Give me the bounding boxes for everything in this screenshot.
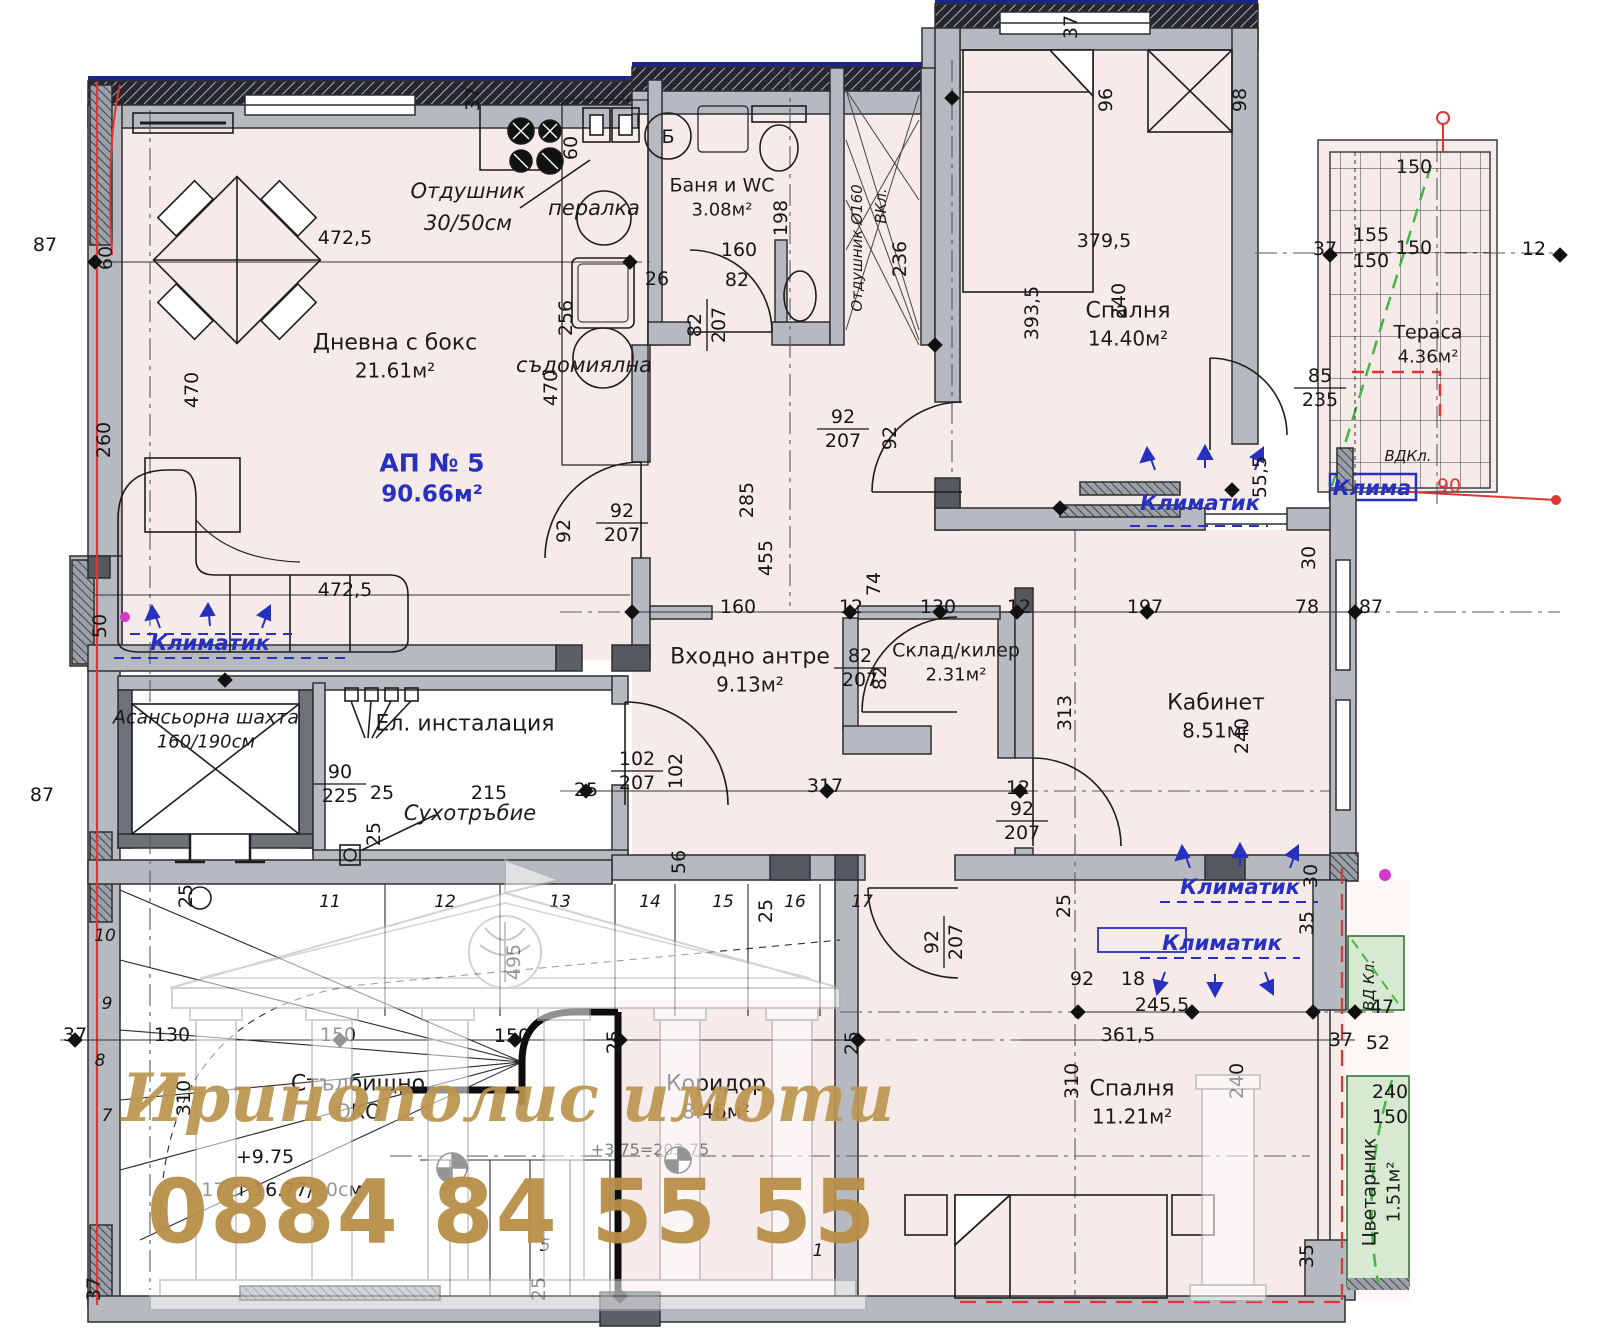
annotation-label: +3.75=203.75 [591, 1140, 709, 1159]
dimension-label: 74 [863, 572, 885, 596]
dimension-label: 150 [1396, 156, 1432, 178]
dimension-label: 150 [1372, 1106, 1408, 1128]
dimension-label: 87 [30, 784, 54, 806]
dimension-label: 92 [879, 426, 901, 450]
dimension-label: 15 [712, 892, 734, 912]
dimension-label: 313 [1054, 695, 1076, 731]
dimension-label: 9 [102, 994, 113, 1014]
annotation-label: пералка [548, 196, 640, 220]
annotation-label: съдомиялна [516, 353, 652, 377]
dimension-label: 256 [555, 300, 577, 336]
dimension-label: 7 [102, 1106, 113, 1126]
dimension-label: 393,5 [1021, 286, 1043, 340]
floor-plan-page: 8760472,53760470260256470472,55092285455… [0, 0, 1600, 1337]
room-label-living: Дневна с бокс21.61м² [313, 328, 477, 383]
dimension-label: 13 [549, 892, 571, 912]
svg-text:82: 82 [848, 645, 872, 667]
dimension-label: 52 [1366, 1032, 1390, 1054]
room-label-terrace: Тераса4.36м² [1393, 321, 1462, 370]
axis-marker [1552, 247, 1568, 263]
svg-text:225: 225 [322, 785, 358, 807]
annotation-label: Климатик [1140, 491, 1260, 515]
annotation-label: Отдушник [411, 179, 526, 203]
dimension-label: 455 [755, 540, 777, 576]
dimension-label: 56 [668, 850, 690, 874]
svg-text:207: 207 [945, 924, 967, 960]
dimension-label: 150 [1396, 237, 1432, 259]
dimension-label: 472,5 [318, 579, 372, 601]
dimension-label: 96 [1095, 88, 1117, 112]
dimension-label: 150 [1353, 250, 1389, 272]
dimension-label: 361,5 [1101, 1024, 1155, 1046]
dimension-label: 130 [154, 1024, 190, 1046]
dimension-label: 92 [1070, 968, 1094, 990]
annotation-label: Б [661, 126, 674, 148]
dimension-label: 37 [83, 1277, 105, 1301]
dimension-label: 37 [1060, 15, 1082, 39]
dimension-label: 155 [1353, 224, 1389, 246]
dimension-label: 240 [1372, 1081, 1408, 1103]
svg-text:102: 102 [619, 748, 655, 770]
annotation-label: Климатик [150, 631, 270, 655]
dimension-label: 25 [1053, 894, 1075, 918]
dimension-label: 60 [560, 136, 582, 160]
room-label-storage: Склад/килер2.31м² [892, 639, 1020, 688]
dimension-label: 87 [1359, 596, 1383, 618]
dimension-label: 160 [720, 596, 756, 618]
dimension-label: 5 [540, 1236, 551, 1256]
dimension-label: 35 [1296, 1244, 1318, 1268]
dimension-label: 17 [851, 892, 873, 912]
annotation-label: Отдушник Ø160 [848, 184, 866, 311]
terrace [1318, 112, 1561, 505]
dimension-label: 35 [1296, 911, 1318, 935]
room-label-bedroom1: Спалня14.40м² [1086, 296, 1171, 351]
dimension-label: 470 [181, 372, 203, 408]
room-label-el-installation: Ел. инсталация [375, 709, 554, 738]
dimension-label: 25 [528, 1277, 550, 1301]
dimension-label: 92 [553, 519, 575, 543]
dimension-label: 10 [94, 926, 116, 946]
dimension-label: 310 [1061, 1063, 1083, 1099]
dimension-label: 25 [363, 822, 385, 846]
annotation-label: 30/50см [424, 211, 512, 235]
dimension-label: 37 [462, 87, 484, 111]
room-label-bedroom2: Спалня11.21м² [1090, 1074, 1175, 1129]
dimension-label: 495 [503, 944, 525, 980]
dimension-label: 87 [33, 234, 57, 256]
dimension-label: 12 [1522, 238, 1546, 260]
svg-text:92: 92 [831, 406, 855, 428]
annotation-label: ВКл. [872, 188, 890, 223]
room-label-office: Кабинет8.51м² [1167, 688, 1265, 743]
dimension-label: 379,5 [1077, 230, 1131, 252]
dimension-label: 30 [1300, 864, 1322, 888]
room-label-planter: Цветарник1.51м² [1358, 1138, 1407, 1247]
dimension-label: 18 [1121, 968, 1145, 990]
svg-text:235: 235 [1302, 389, 1338, 411]
dimension-label: 25 [175, 884, 197, 908]
dimension-label: 240 [1226, 1063, 1248, 1099]
annotation-label: Климатик [1180, 875, 1300, 899]
svg-text:207: 207 [1004, 822, 1040, 844]
dimension-label: 26 [645, 268, 669, 290]
room-label-stairwell: СтълбищноОКО [291, 1069, 425, 1124]
annotation-label: 90 [1437, 475, 1461, 497]
dimension-label: 285 [736, 482, 758, 518]
svg-text:207: 207 [604, 524, 640, 546]
annotation-label: Климатик [1162, 931, 1282, 955]
dimension-label: 11 [319, 892, 341, 912]
dimension-label: 160 [721, 239, 757, 261]
room-label-entry: Входно антре9.13м² [670, 642, 830, 697]
annotation-label: +9.75 [236, 1146, 294, 1168]
dimension-label: 310 [173, 1080, 195, 1116]
svg-text:90: 90 [328, 761, 352, 783]
room-label-bath: Баня и WC3.08м² [669, 174, 774, 223]
svg-text:207: 207 [842, 669, 878, 691]
dimension-label: 98 [1229, 88, 1251, 112]
dimension-label: 78 [1295, 596, 1319, 618]
svg-text:207: 207 [825, 430, 861, 452]
dimension-label: 14 [639, 892, 661, 912]
dimension-label: 245,5 [1135, 994, 1189, 1016]
dimension-label: 37 [1329, 1029, 1353, 1051]
annotation-label: 17ст.16.77/80см [201, 1179, 362, 1201]
dimension-label: 102 [665, 753, 687, 789]
room-label-elevator: Асансьорна шахта160/190см [113, 706, 299, 755]
annotation-label: ВДКл. [1384, 447, 1431, 465]
dimension-label: 472,5 [318, 227, 372, 249]
dimension-label: 16 [784, 892, 806, 912]
dimension-label: 25 [755, 899, 777, 923]
annotation-label: ВД Кл. [1360, 959, 1378, 1011]
dimension-label: 30 [1298, 546, 1320, 570]
svg-text:82: 82 [684, 313, 706, 337]
dimension-label: 82 [725, 269, 749, 291]
svg-text:92: 92 [1010, 798, 1034, 820]
dimension-label: 260 [93, 422, 115, 458]
dimension-label: 25 [370, 782, 394, 804]
dimension-label: 50 [89, 614, 111, 638]
dimension-label: 8 [95, 1051, 106, 1071]
annotation-label: Клима [1333, 476, 1412, 500]
room-label-corridor: Коридор8.46м² [666, 1069, 766, 1124]
annotation-label: Сухотръбие [404, 801, 536, 825]
svg-text:85: 85 [1308, 365, 1332, 387]
dimension-label: 1 [813, 1241, 824, 1261]
apartment-id-label: АП № 590.66м² [379, 446, 484, 509]
dimension-label: 12 [434, 892, 456, 912]
svg-text:207: 207 [708, 307, 730, 343]
dimension-label: 236 [889, 241, 911, 277]
svg-text:92: 92 [610, 500, 634, 522]
svg-text:207: 207 [619, 772, 655, 794]
svg-text:92: 92 [921, 930, 943, 954]
